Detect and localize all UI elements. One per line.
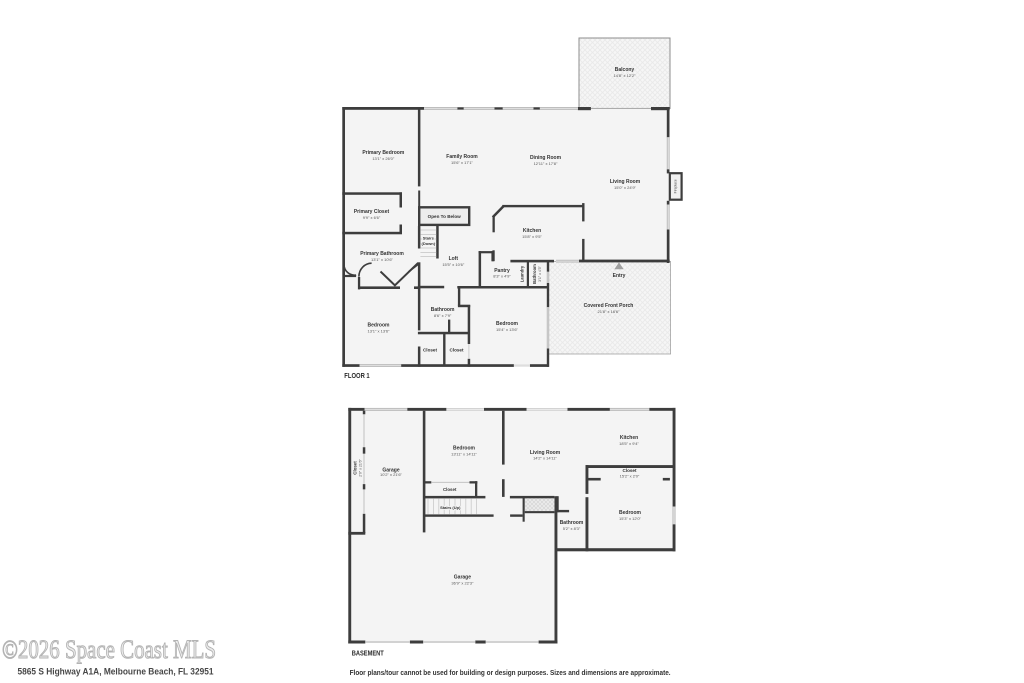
svg-text:18'5" x 9'4": 18'5" x 9'4" [619,441,639,446]
svg-text:Closet: Closet [353,461,358,475]
svg-text:5'2" x 8'3": 5'2" x 8'3" [563,526,581,531]
svg-text:8'6" x 7'9": 8'6" x 7'9" [434,313,452,318]
svg-text:15'4" x 13'6": 15'4" x 13'6" [496,327,519,332]
svg-text:3'1" x 4'5": 3'1" x 4'5" [538,265,542,281]
svg-text:Closet: Closet [423,348,438,353]
svg-text:2'0" x 21'6": 2'0" x 21'6" [359,458,363,476]
svg-text:Closet: Closet [622,468,637,473]
svg-text:Entry: Entry [613,273,626,279]
svg-text:Floor plans/tour cannot be use: Floor plans/tour cannot be used for buil… [350,668,671,677]
svg-text:FLOOR 1: FLOOR 1 [344,371,370,380]
svg-text:15'3" x 12'0": 15'3" x 12'0" [619,516,642,521]
svg-text:BASEMENT: BASEMENT [352,648,384,657]
svg-text:12'11" x 17'8": 12'11" x 17'8" [534,161,558,166]
svg-text:13'11" x 14'11": 13'11" x 14'11" [451,452,477,457]
svg-text:13'1" x 10'6": 13'1" x 10'6" [371,257,394,262]
svg-text:5865 S Highway A1A, Melbourne: 5865 S Highway A1A, Melbourne Beach, FL … [18,667,215,678]
svg-text:13'1" x 13'6": 13'1" x 13'6" [368,329,391,334]
svg-text:Stairs (Up): Stairs (Up) [440,505,461,510]
svg-text:10'2" x 21'6": 10'2" x 21'6" [380,472,403,477]
svg-text:15'2" x 2'0": 15'2" x 2'0" [620,474,640,479]
svg-text:15'5" x 10'6": 15'5" x 10'6" [442,262,465,267]
svg-text:Closet: Closet [443,487,457,492]
svg-text:14'2" x 14'11": 14'2" x 14'11" [533,456,557,461]
svg-text:15'6" x 17'1": 15'6" x 17'1" [451,160,474,165]
svg-text:Laundry: Laundry [520,265,525,282]
svg-text:Closet: Closet [449,348,464,353]
svg-text:©2026 Space Coast MLS: ©2026 Space Coast MLS [2,635,216,664]
svg-text:Bathroom: Bathroom [532,264,537,284]
svg-text:Open To Below: Open To Below [428,214,462,219]
svg-text:8'3" x 4'9": 8'3" x 4'9" [493,274,511,279]
svg-text:21'8" x 16'6": 21'8" x 16'6" [598,309,621,314]
svg-text:36'9" x 22'3": 36'9" x 22'3" [451,581,474,586]
svg-text:9'9" x 6'6": 9'9" x 6'6" [363,215,381,220]
svg-text:13'1" x 26'0": 13'1" x 26'0" [372,156,395,161]
svg-text:Stairs: Stairs [423,236,435,241]
svg-text:15'0" x 24'9": 15'0" x 24'9" [614,185,637,190]
svg-text:14'8" x 12'2": 14'8" x 12'2" [614,73,637,78]
svg-text:15'8" x 9'5": 15'8" x 9'5" [522,234,542,239]
svg-text:Fireplace: Fireplace [674,179,678,193]
svg-text:(Down): (Down) [422,241,436,246]
